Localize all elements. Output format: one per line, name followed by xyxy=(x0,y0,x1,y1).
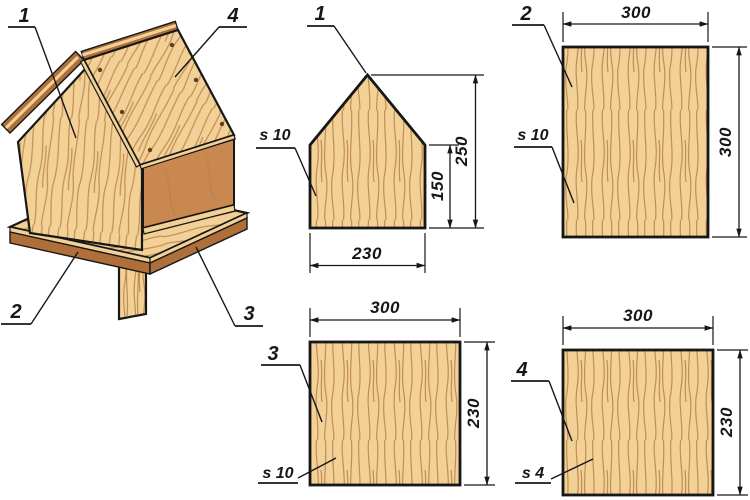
part1-thickness-label: s 10 xyxy=(259,127,290,144)
birdhouse-parts-diagram: 1 4 2 3 1 s 10 xyxy=(0,0,750,500)
part3-thickness-label: s 10 xyxy=(262,465,293,482)
part4-callout-label: 4 xyxy=(515,359,527,381)
part1-dim-side-label: 150 xyxy=(428,171,447,201)
part4-dim-height-label: 230 xyxy=(717,407,736,438)
part3-panel xyxy=(310,342,460,485)
part2-callout-label: 2 xyxy=(519,3,531,25)
part3-dim-width-label: 300 xyxy=(370,298,400,317)
assembly-callout-2: 2 xyxy=(1,252,78,324)
part4-dim-height: 230 xyxy=(717,350,748,495)
part2-panel xyxy=(563,47,708,237)
part4-dim-width-label: 300 xyxy=(623,306,653,325)
assembly-callout-1-label: 1 xyxy=(18,5,29,27)
part1-dim-width-label: 230 xyxy=(351,244,382,263)
part4-panel xyxy=(563,350,713,495)
part2-drawing: 2 s 10 300 300 xyxy=(512,3,747,237)
part4-thickness-label: s 4 xyxy=(522,465,544,482)
part1-callout: 1 xyxy=(307,3,366,73)
part3-dim-width: 300 xyxy=(310,298,460,337)
part2-dim-height-label: 300 xyxy=(716,127,735,157)
part1-dim-width: 230 xyxy=(310,233,425,273)
part1-drawing: 1 s 10 230 150 250 xyxy=(256,3,484,273)
part1-callout-label: 1 xyxy=(314,3,325,25)
part4-dim-width: 300 xyxy=(563,306,713,345)
part2-dim-width: 300 xyxy=(563,3,708,42)
part3-dim-height-label: 230 xyxy=(464,398,483,429)
part3-callout-label: 3 xyxy=(267,343,278,365)
part1-dim-total-label: 250 xyxy=(452,136,471,167)
assembly-callout-4-label: 4 xyxy=(226,5,238,27)
part2-dim-width-label: 300 xyxy=(621,3,651,22)
part1-thickness: s 10 xyxy=(256,127,316,196)
part3-drawing: 3 s 10 300 230 xyxy=(258,298,495,485)
assembly-callout-3-label: 3 xyxy=(243,303,254,325)
blueprint-page: 1 4 2 3 1 s 10 xyxy=(0,0,750,500)
assembly-callout-3: 3 xyxy=(196,247,263,326)
assembly-callout-2-label: 2 xyxy=(9,301,21,323)
part3-dim-height: 230 xyxy=(464,342,495,485)
assembly-view: 1 4 2 3 xyxy=(1,5,263,326)
part2-thickness-label: s 10 xyxy=(517,127,548,144)
part2-dim-height: 300 xyxy=(712,47,747,237)
part1-panel xyxy=(310,75,425,228)
part4-drawing: 4 s 4 300 230 xyxy=(511,306,748,495)
